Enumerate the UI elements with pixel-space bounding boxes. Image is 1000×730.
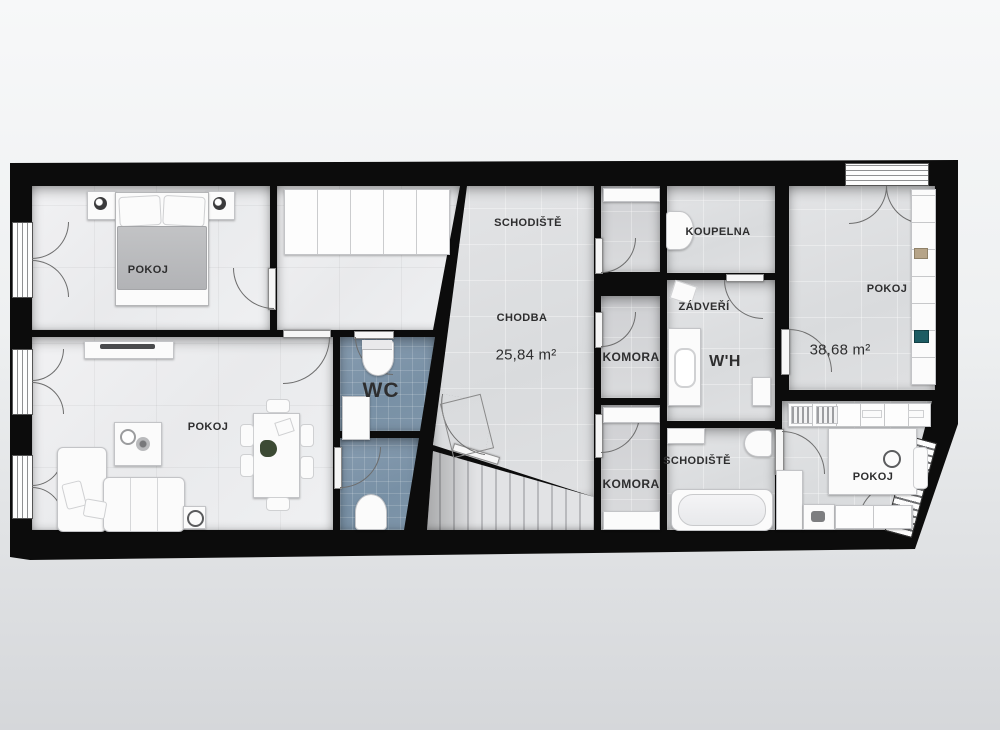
- bathtub-basin: [678, 494, 766, 526]
- bed-plant-decor: [883, 450, 901, 468]
- toilet-wc-lower: [355, 494, 387, 530]
- shelf-stack: [862, 410, 882, 418]
- koupelna-label: KOUPELNA: [686, 226, 751, 238]
- floor-plan: POKOJ POKOJ WC SCHODIŠTĚ CHODBA 25,84 m²…: [0, 0, 1000, 730]
- shelf-item-tan: [914, 248, 928, 259]
- wh-label: W'H: [709, 353, 741, 371]
- komora-low-shelf-top: [603, 407, 660, 423]
- toilet-bathroom: [744, 430, 772, 457]
- balcony-door-window: [845, 163, 929, 186]
- zadveri-label: ZÁDVEŘÍ: [678, 301, 729, 313]
- wardrobe: [284, 189, 450, 255]
- hall-staircase-label: SCHODIŠTĚ: [494, 217, 562, 229]
- bed-right-bottom: [828, 428, 917, 495]
- shelf-stack: [908, 410, 924, 418]
- bookshelf-right-top: [911, 189, 936, 385]
- room-bedroom-label: POKOJ: [128, 264, 169, 276]
- corridor-area-label: 25,84 m²: [496, 347, 557, 364]
- shelf-item-teal: [914, 330, 929, 343]
- books-row: [791, 406, 813, 424]
- window-bedroom: [12, 222, 33, 298]
- sofa-pillow: [83, 498, 108, 520]
- room-right-bottom-label: POKOJ: [853, 471, 894, 483]
- komora-low-shelf-bottom: [603, 511, 660, 530]
- bed-pillow: [118, 195, 162, 227]
- window-living-1: [12, 349, 33, 415]
- dining-plant: [260, 440, 277, 457]
- side-table-plant: [187, 510, 204, 527]
- corridor-label: CHODBA: [497, 312, 548, 324]
- desk-left: [776, 470, 803, 530]
- bed-blanket: [117, 226, 207, 290]
- toilet-cistern-upper: [362, 340, 392, 350]
- lamp-left: [94, 197, 107, 210]
- tv-screen: [100, 344, 155, 349]
- dining-chair: [266, 399, 290, 413]
- storage-shelf-top: [603, 188, 660, 202]
- washing-machine: [752, 377, 771, 406]
- dining-chair: [300, 424, 314, 447]
- bed-pillow: [162, 195, 206, 227]
- dining-chair: [266, 497, 290, 511]
- coffee-table-decor-bowl: [120, 429, 136, 445]
- dining-chair: [240, 424, 254, 447]
- bench-right: [913, 447, 928, 489]
- lamp-right: [213, 197, 226, 210]
- side-unit-item: [811, 511, 825, 522]
- wh-basin: [674, 348, 696, 388]
- bathroom-counter: [667, 428, 705, 444]
- books-row: [816, 406, 838, 424]
- coffee-table-decor-plate: [136, 437, 150, 451]
- room-right-top-label: POKOJ: [867, 283, 908, 295]
- window-living-2: [12, 455, 33, 519]
- komora-mid-label: KOMORA: [602, 350, 659, 364]
- dining-chair: [240, 454, 254, 477]
- komora-low-label: KOMORA: [602, 477, 659, 491]
- bathroom-label: SCHODIŠTĚ: [663, 455, 731, 467]
- sofa-seats: [103, 477, 185, 532]
- room-living-label: POKOJ: [188, 421, 229, 433]
- room-right-top-area-label: 38,68 m²: [810, 342, 871, 359]
- room-wc-label: WC: [363, 379, 400, 403]
- cabinet-bottom: [835, 505, 913, 529]
- dining-chair: [300, 456, 314, 479]
